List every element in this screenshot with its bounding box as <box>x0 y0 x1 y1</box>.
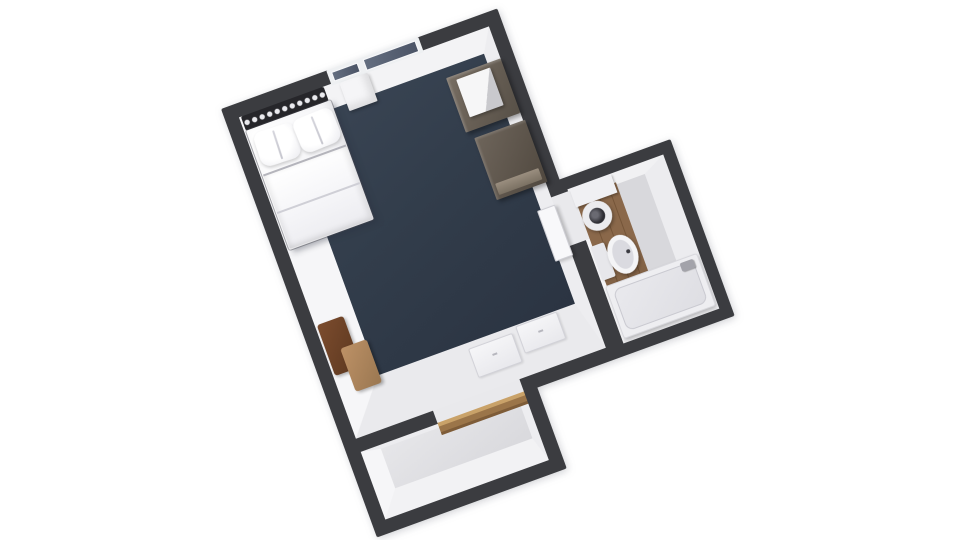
floorplan-canvas <box>0 0 960 540</box>
floorplan-3d-render <box>221 0 786 540</box>
